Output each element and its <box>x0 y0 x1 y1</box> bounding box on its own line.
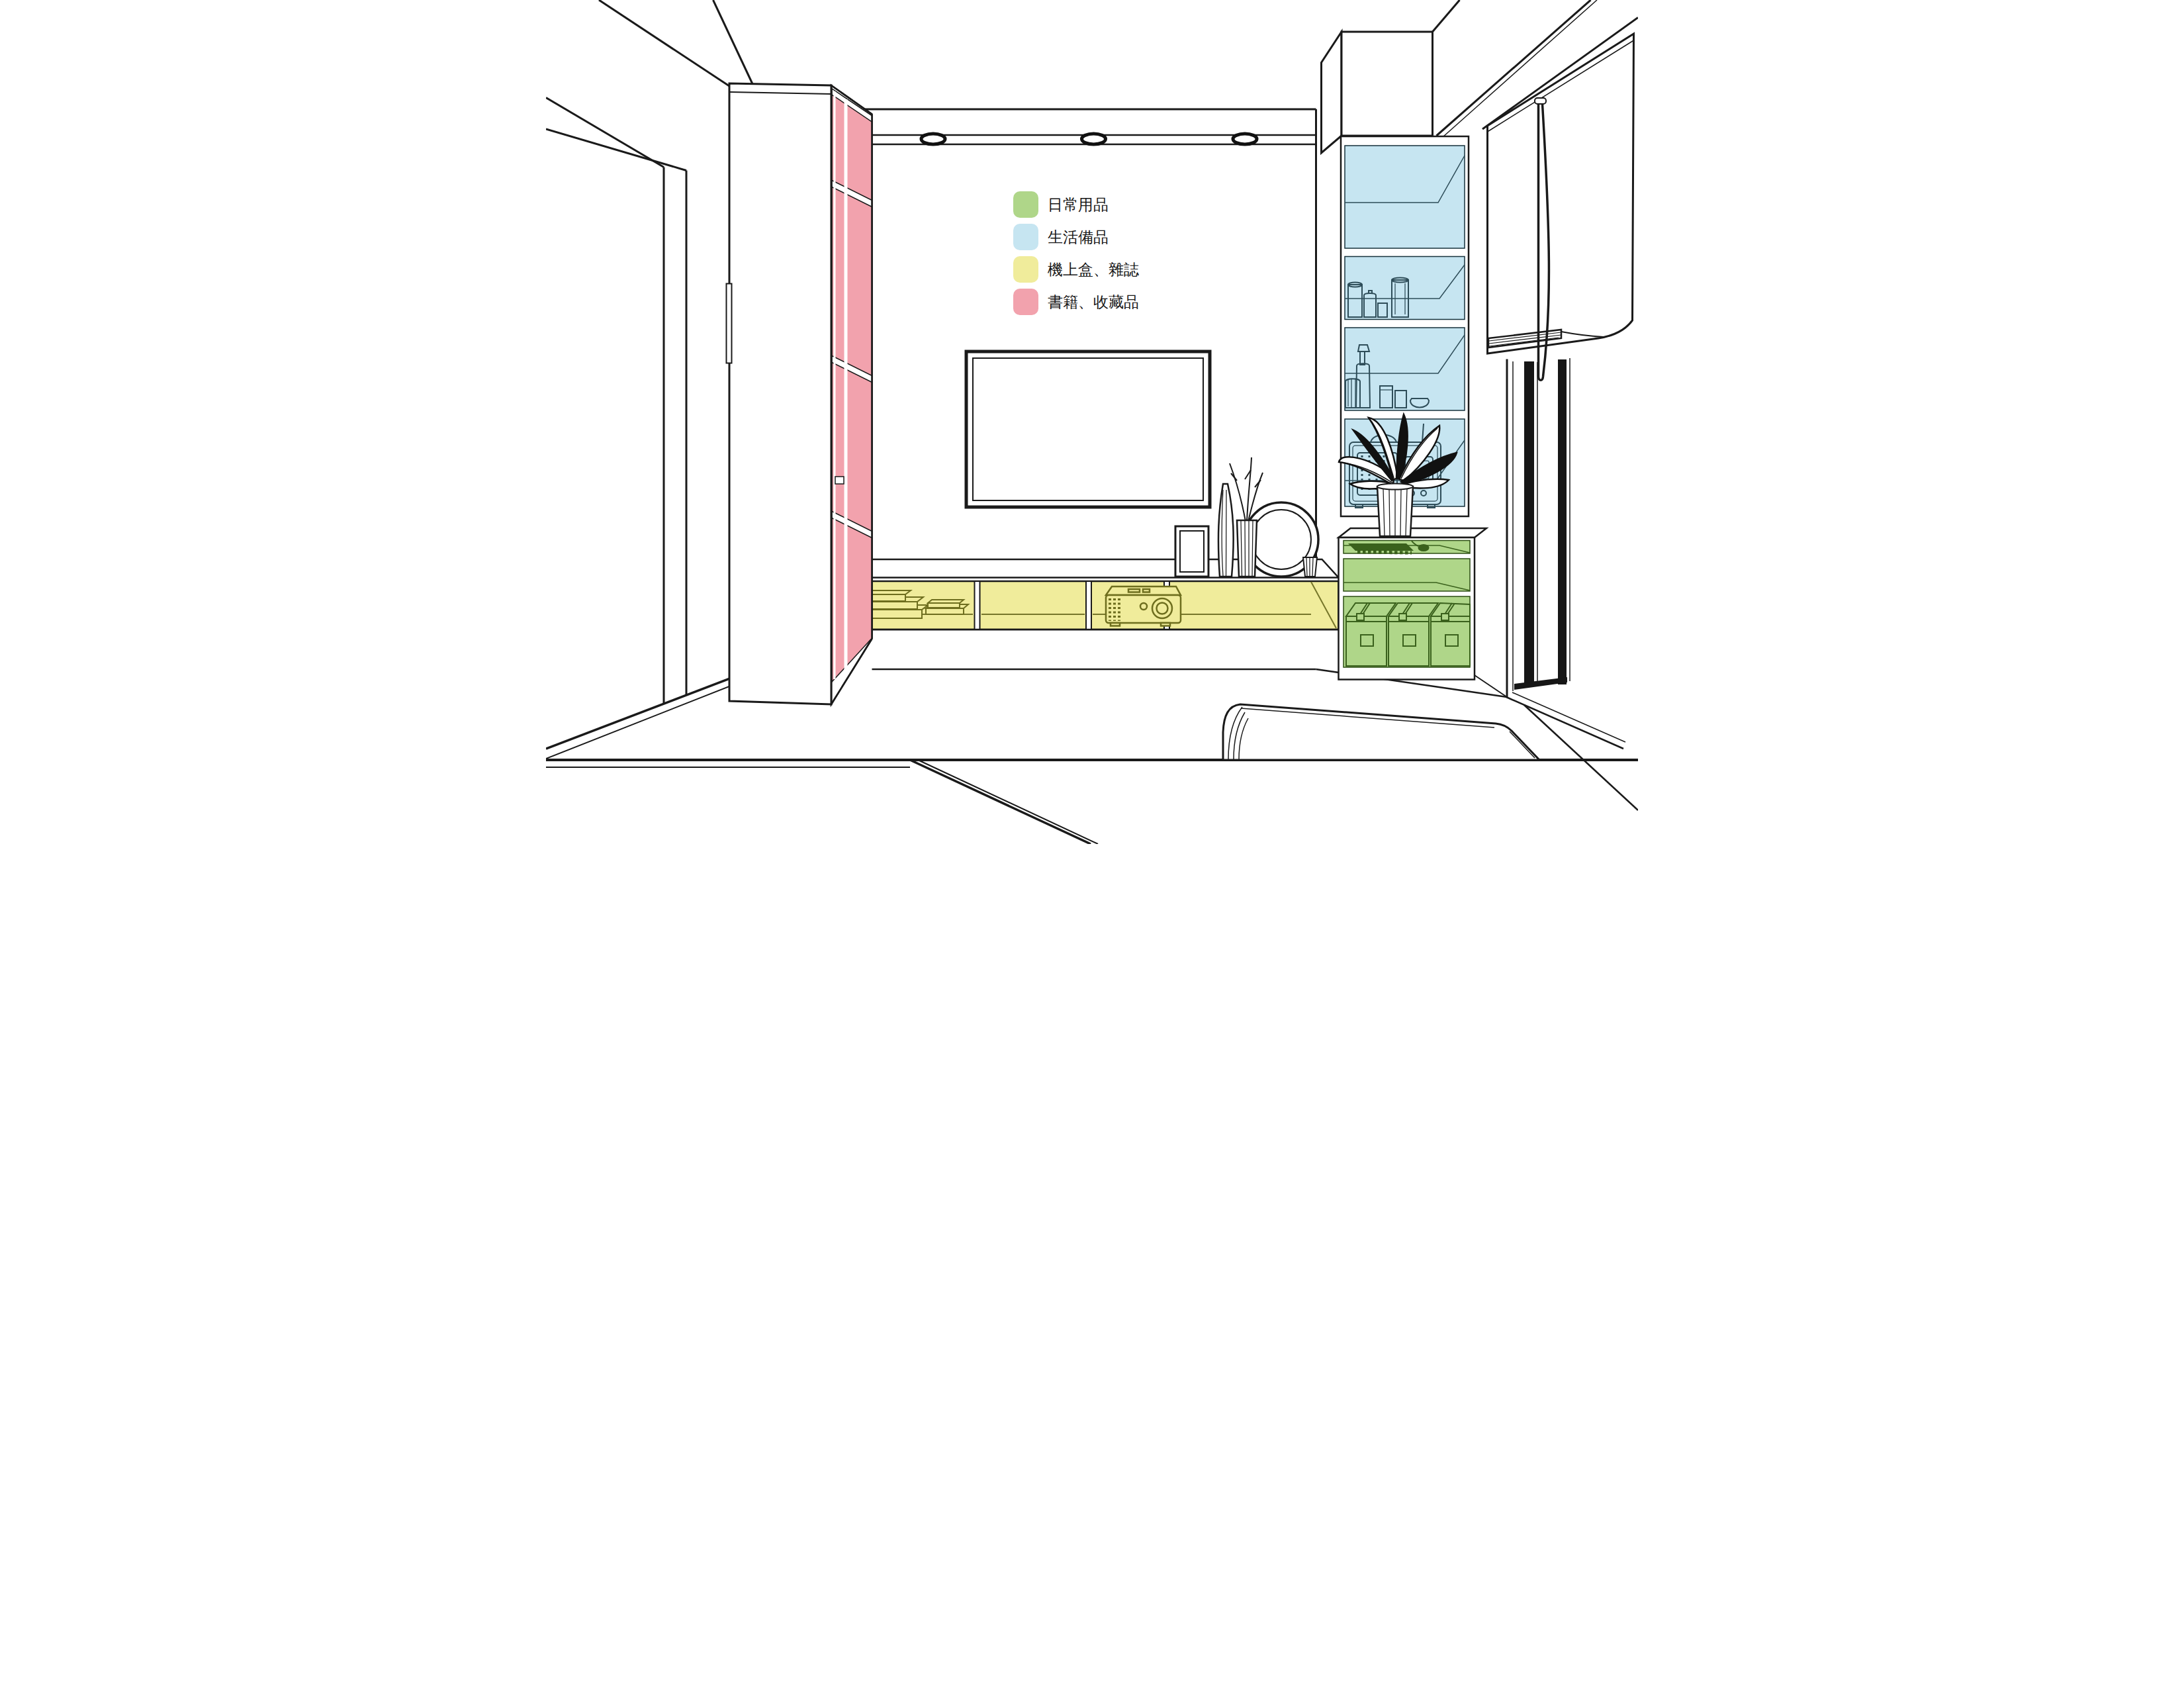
storage-box <box>1431 603 1470 666</box>
book <box>928 603 960 608</box>
cabinet-side-zone-books-collectibles <box>832 89 872 682</box>
floor <box>546 760 1638 844</box>
projector <box>1106 586 1181 626</box>
window-mullion <box>1558 359 1567 684</box>
projector-button <box>1143 589 1150 592</box>
box-front <box>1388 616 1429 666</box>
keyboard-icon <box>1348 543 1414 551</box>
tv <box>966 352 1210 507</box>
twig-vase <box>1237 520 1257 577</box>
legend-chip-pink <box>1013 289 1038 315</box>
rug-edge-line-2 <box>918 760 1098 844</box>
console-divider <box>975 581 980 630</box>
left-wall-header-line <box>546 98 664 167</box>
box-front <box>1431 616 1470 666</box>
legend-chip-blue <box>1013 224 1038 250</box>
mattress-body <box>1223 704 1539 760</box>
projector-foot <box>1111 623 1120 626</box>
projector-foot <box>1161 623 1170 626</box>
upper-cabinet-side <box>1322 32 1342 153</box>
tall-cabinet <box>727 83 872 704</box>
left-wall-header-line-2 <box>546 129 686 171</box>
door-handle <box>727 284 732 363</box>
shelf-bracket <box>835 477 844 484</box>
window-sill-inner <box>1512 692 1625 742</box>
decor-ring-inner <box>1251 510 1311 569</box>
recessed-light-icon <box>921 134 945 144</box>
green-cabinet-top <box>1339 528 1487 538</box>
twig-offshoot <box>1231 470 1261 487</box>
blind-fabric <box>1488 34 1634 353</box>
box-clasp <box>1357 614 1364 620</box>
upper-right-cabinet <box>1322 0 1460 153</box>
right-wall-floor-corner <box>1524 705 1638 810</box>
plant-pot-rim <box>1377 484 1413 490</box>
cabinet-front-face <box>729 83 831 704</box>
mattress <box>1223 704 1539 760</box>
green-cabinet <box>1339 528 1487 680</box>
window-bottom-rail <box>1514 677 1567 690</box>
window-sill <box>1506 697 1623 749</box>
legend-label: 日常用品 <box>1048 196 1109 213</box>
tv-screen <box>966 352 1210 507</box>
page: 日常用品 生活備品 機上盒、雜誌 書籍、收藏品 <box>546 0 1638 844</box>
legend-item-settop: 機上盒、雜誌 <box>1013 256 1139 283</box>
box-clasp <box>1441 614 1449 620</box>
legend-chip-green <box>1013 191 1038 218</box>
box-lid <box>1388 603 1438 616</box>
legend-item-daily: 日常用品 <box>1013 191 1109 218</box>
interior-rendering: 日常用品 生活備品 機上盒、雜誌 書籍、收藏品 <box>546 0 1638 844</box>
legend: 日常用品 生活備品 機上盒、雜誌 書籍、收藏品 <box>1013 191 1139 315</box>
legend-label: 書籍、收藏品 <box>1048 293 1139 310</box>
legend-item-books: 書籍、收藏品 <box>1013 289 1139 315</box>
cord-anchor <box>1535 98 1546 104</box>
rug-edge-line <box>910 760 1091 844</box>
recessed-light-icon <box>1233 134 1257 144</box>
legend-chip-yellow <box>1013 256 1038 283</box>
legend-label: 機上盒、雜誌 <box>1047 261 1139 278</box>
storage-boxes <box>1346 603 1470 666</box>
upper-cabinet-ceiling-edge <box>1433 0 1460 32</box>
mouse-icon <box>1418 544 1430 551</box>
roman-blind <box>1488 34 1634 380</box>
console-divider <box>1086 581 1091 630</box>
blue-shelf-compartment <box>1345 146 1465 248</box>
blue-shelf-compartment <box>1345 328 1465 410</box>
box-lid <box>1346 603 1396 616</box>
book <box>926 608 964 614</box>
recessed-light-icon <box>1082 134 1106 144</box>
box-front <box>1346 616 1387 666</box>
window-mullion <box>1524 361 1534 684</box>
legend-label: 生活備品 <box>1048 228 1109 246</box>
legend-item-living: 生活備品 <box>1013 224 1109 250</box>
box-clasp <box>1399 614 1406 620</box>
upper-cabinet-front <box>1342 32 1433 136</box>
projector-button <box>1128 589 1140 592</box>
